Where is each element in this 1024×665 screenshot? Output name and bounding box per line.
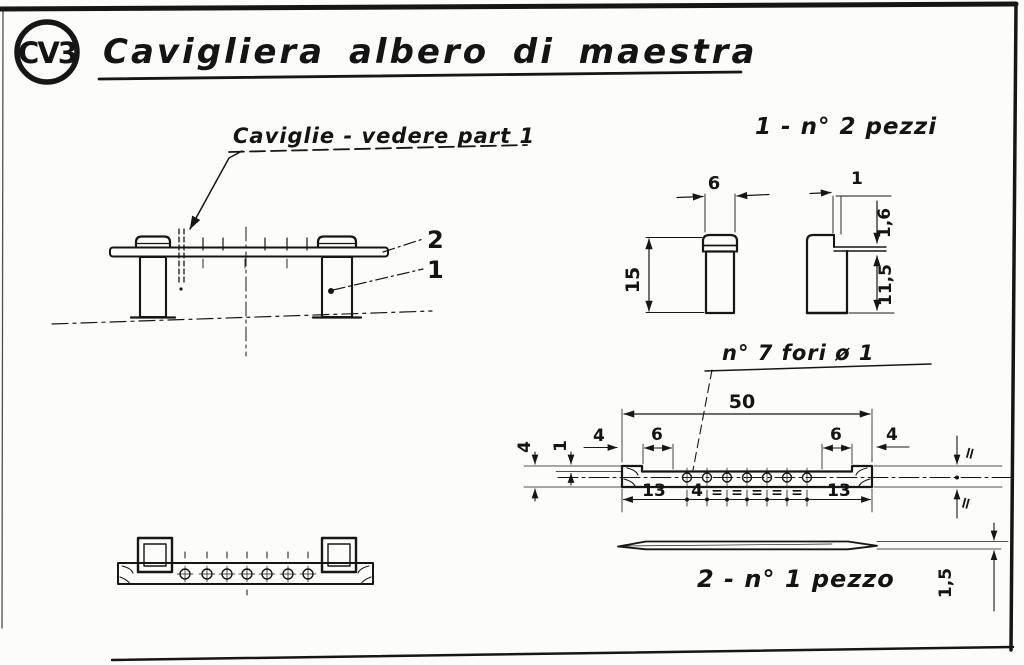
holes-note-leader <box>693 370 712 470</box>
part2-seat-left: 6 <box>651 425 663 445</box>
chain-eq: = <box>711 485 723 501</box>
left-post-plan-outer <box>138 538 172 572</box>
caviglie-note: Caviglie - vedere part 1 <box>190 124 535 229</box>
holes-note-text: n° 7 fori ø 1 <box>722 341 874 365</box>
part1-width: 6 <box>708 173 721 194</box>
caviglie-note-text: Caviglie - vedere part 1 <box>233 124 535 148</box>
chain-dot <box>705 498 709 502</box>
chain-eq: = <box>791 485 803 501</box>
left-post-cap <box>136 237 170 248</box>
right-post-cap <box>318 237 356 248</box>
border-left <box>2 9 3 628</box>
sheet-code: CV3 <box>18 36 76 70</box>
eq-center-dot <box>955 476 959 480</box>
part1-side-view: 1 1,6 11,5 <box>807 169 896 313</box>
callout-post: 1 <box>427 256 444 284</box>
chain-4: 4 <box>691 481 703 501</box>
right-post-plan-outer <box>322 538 356 572</box>
right-ext-lines <box>874 466 1002 487</box>
slot-arrow <box>810 193 831 194</box>
left-post-body <box>140 257 166 317</box>
chain-dot <box>725 498 729 502</box>
chain-eq: = <box>731 485 743 501</box>
part2-qty-note: 2 - n° 1 pezzo <box>697 565 895 593</box>
callout-rail: 2 <box>427 226 444 254</box>
right-post-body <box>322 257 352 317</box>
part2-end-right: 4 <box>886 425 898 445</box>
chain-13-left: 13 <box>642 481 666 501</box>
chain-dot <box>685 498 689 502</box>
width-arrow-left <box>677 197 703 198</box>
pin-dot <box>179 287 182 290</box>
drawing-sheet: CV3 Cavigliera albero di maestra Cavigli… <box>0 0 1024 665</box>
chain-dot <box>805 498 809 502</box>
plan-pin-dashes <box>185 552 308 595</box>
sheet-code-stamp: CV3 <box>17 22 77 82</box>
equal-mark-top: = <box>959 444 981 462</box>
part2-seat-right: 6 <box>830 425 842 445</box>
part1-height: 15 <box>622 267 644 293</box>
border-top <box>0 4 1016 9</box>
equal-mark-bottom: = <box>955 494 977 512</box>
sheet-title: Cavigliera albero di maestra <box>103 32 757 72</box>
part2-side-view: 1,5 2 - n° 1 pezzo <box>618 523 1008 611</box>
part1-cap <box>703 235 737 252</box>
left-ext-lines <box>524 466 622 487</box>
rail-through-slot <box>834 247 886 251</box>
border-bottom <box>112 647 1013 660</box>
chain-eq: = <box>751 485 763 501</box>
border-right <box>1011 4 1016 650</box>
part2-edge: 1 <box>551 440 571 452</box>
strip-taper-line <box>625 544 832 546</box>
holes-note-underline <box>705 364 931 371</box>
seat-ext-lines <box>643 444 852 469</box>
slot-ext-lines <box>833 196 841 234</box>
deck-centerline <box>52 311 432 324</box>
chain-dot <box>745 498 749 502</box>
pin-ticks-below <box>203 259 287 268</box>
chain-dot <box>785 498 789 502</box>
assembly-plan-view <box>118 538 373 595</box>
part1-qty-note: 1 - n° 2 pezzi <box>755 114 937 140</box>
thickness-ext-lines <box>877 542 1008 550</box>
width-ext-lines <box>705 194 735 232</box>
callout-1-dot <box>328 288 334 294</box>
callout-2-leader <box>383 239 423 252</box>
part2-length: 50 <box>729 391 755 413</box>
assembly-elevation: 2 1 <box>52 226 444 356</box>
chain-dot <box>765 498 769 502</box>
rail-side-view <box>110 248 388 257</box>
chain-eq: = <box>771 485 783 501</box>
note-leader-arrow <box>190 151 242 229</box>
height-ext-lines <box>646 238 704 313</box>
part1-slot-width: 1 <box>851 169 863 189</box>
part1-slot-depth: 1,6 <box>875 208 895 238</box>
callout-1-leader <box>333 269 423 290</box>
part2-thickness: 1,5 <box>936 568 956 598</box>
part1-front-view: 6 15 <box>622 173 769 313</box>
part2-plan-view: 4 1 4 6 6 4 50 13 4 = = = = = 13 <box>515 391 1012 518</box>
part1-body <box>706 252 734 314</box>
sheet-border <box>0 4 1016 660</box>
title-block: Cavigliera albero di maestra <box>99 32 757 79</box>
part2-width: 4 <box>515 441 535 453</box>
part1-below-slot: 11,5 <box>876 264 896 306</box>
width-arrow-right <box>737 195 769 197</box>
chain-13-right: 13 <box>827 481 851 501</box>
technical-drawing: CV3 Cavigliera albero di maestra Cavigli… <box>0 0 1024 665</box>
side-left-top <box>807 235 834 313</box>
part2-end-left: 4 <box>593 426 605 446</box>
title-underline <box>99 72 741 79</box>
